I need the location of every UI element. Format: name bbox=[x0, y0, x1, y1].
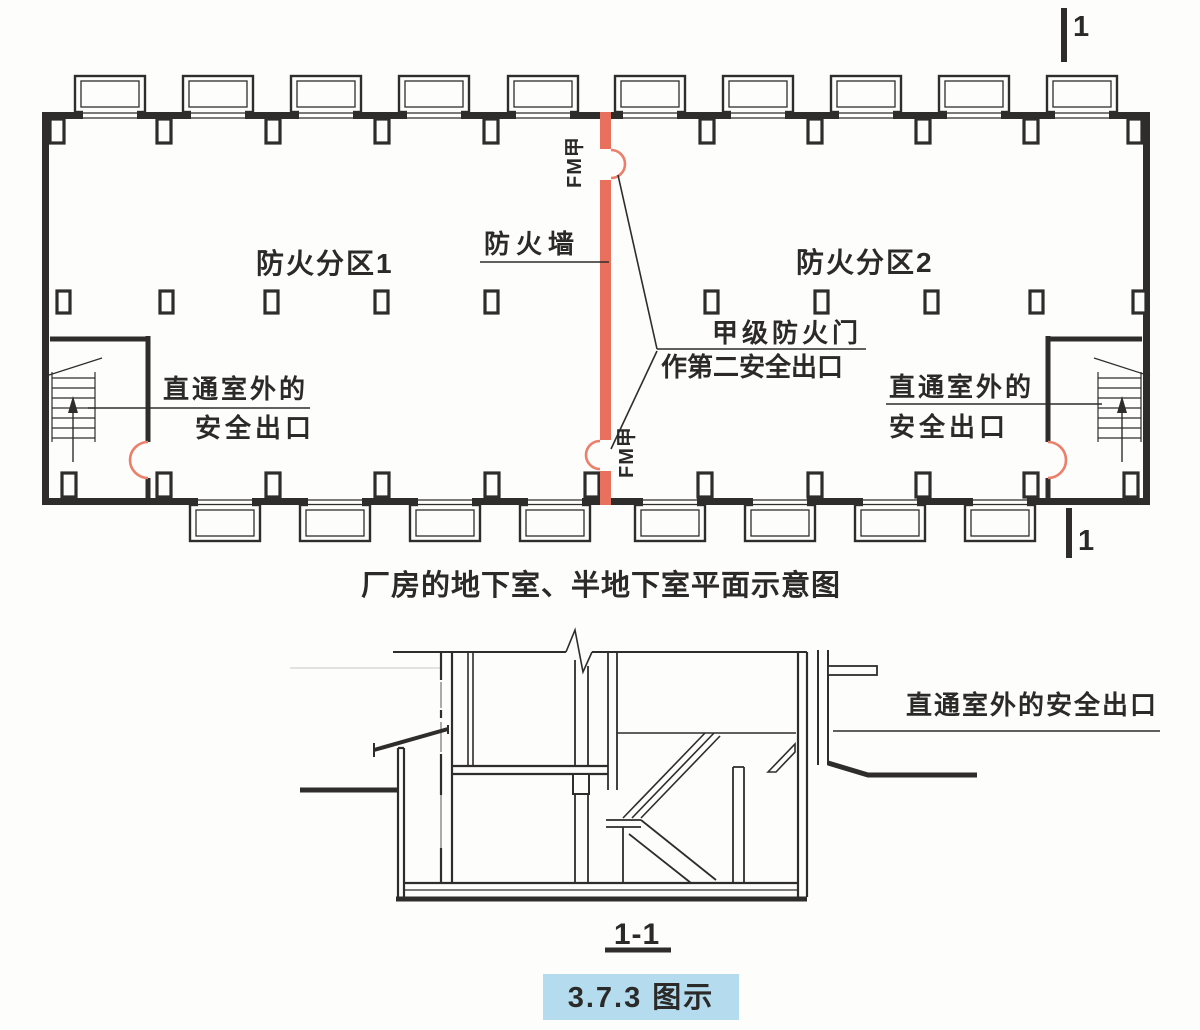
zone1-label: 防火分区1 bbox=[256, 248, 394, 279]
section-exit-label: 直通室外的安全出口 bbox=[906, 690, 1158, 720]
basement-floor bbox=[396, 883, 807, 899]
left-stair-exit-door bbox=[130, 442, 148, 478]
left-exit-label-line2: 安全出口 bbox=[195, 413, 315, 443]
door-note-line2: 作第二安全出口 bbox=[661, 352, 843, 382]
code-illustration-canvas: 防火分区1 防火分区2 防火墙 FM甲 FM甲 甲级防火门 作第二安全出口 直通… bbox=[0, 0, 1200, 1025]
section-left-wall bbox=[437, 652, 473, 883]
zone2-label: 防火分区2 bbox=[796, 247, 934, 278]
window-well-canopy bbox=[300, 725, 448, 897]
badge-label: 3.7.3 图示 bbox=[568, 982, 715, 1014]
fire-wall-label: 防火墙 bbox=[484, 229, 580, 259]
section-right-wall bbox=[798, 650, 977, 897]
door-note-line1: 甲级防火门 bbox=[712, 318, 862, 348]
exterior-walls bbox=[42, 112, 1150, 505]
fire-door-bottom-tag: FM甲 bbox=[616, 426, 638, 478]
figure-badge: 3.7.3 图示 bbox=[543, 974, 739, 1020]
plan-leader-lines bbox=[88, 175, 1102, 449]
plan-caption: 厂房的地下室、半地下室平面示意图 bbox=[361, 568, 841, 602]
section-cut-line-top bbox=[1061, 8, 1067, 62]
section-cut-markers: 1 1 bbox=[1061, 8, 1094, 558]
basement-slab-and-walls bbox=[452, 652, 617, 883]
fire-wall bbox=[597, 112, 614, 505]
section-cut-number-top: 1 bbox=[1073, 11, 1089, 43]
left-exit-label-line1: 直通室外的 bbox=[163, 374, 308, 404]
exit-path-line bbox=[828, 763, 977, 775]
ground-line bbox=[393, 630, 807, 672]
break-line bbox=[566, 630, 592, 672]
door-note-leader-top bbox=[618, 175, 657, 349]
basement-stair bbox=[606, 733, 796, 883]
right-exit-label-line1: 直通室外的 bbox=[889, 372, 1034, 402]
floor-plan-drawing: 防火分区1 防火分区2 防火墙 FM甲 FM甲 甲级防火门 作第二安全出口 直通… bbox=[42, 76, 1150, 602]
section-title: 1-1 bbox=[614, 918, 660, 951]
right-exit-label-line2: 安全出口 bbox=[889, 412, 1009, 442]
section-cut-number-bottom: 1 bbox=[1078, 525, 1094, 557]
section-cut-line-bottom bbox=[1066, 508, 1072, 558]
section-drawing: 直通室外的安全出口 1-1 bbox=[290, 630, 1160, 951]
fire-door-top-tag: FM甲 bbox=[564, 136, 586, 188]
right-stair-exit-door bbox=[1048, 442, 1066, 478]
